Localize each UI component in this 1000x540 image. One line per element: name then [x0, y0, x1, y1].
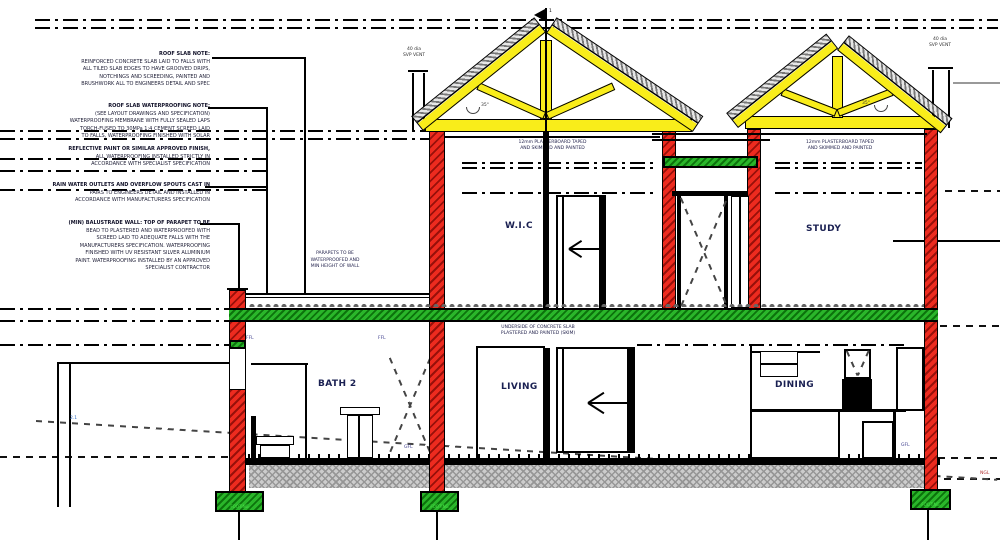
note-waterproofing: ROOF SLAB WATERPROOFING NOTE:(SEE LAYOUT…: [30, 103, 210, 141]
leader-waterproofing-h: [208, 107, 268, 109]
valley-door-jamb-left: [677, 196, 681, 309]
ceiling-datum-wic-3: [462, 192, 655, 194]
dining-upper-cabinet-shelf: [760, 363, 798, 365]
gf-door-arrow-shaft: [588, 402, 630, 404]
valley-gutter-line-2: [652, 139, 770, 141]
ffl-tag-1: FFL: [246, 336, 254, 341]
shower-screen-top: [251, 363, 308, 365]
footing-drop-line-2: [436, 512, 438, 540]
first-floor-slab: [229, 308, 938, 322]
ceiling-datum-study-1: [775, 162, 922, 164]
note-roof-slab: ROOF SLAB NOTE:REINFORCED CONCRETE SLAB …: [35, 51, 210, 89]
boundary-wall-top: [57, 362, 231, 364]
truss-left-strut-2: [545, 83, 615, 120]
truss-left-bottom-chord: [425, 119, 692, 132]
truss-left-rafter-right: [546, 17, 703, 132]
wic-door-frame-2: [562, 195, 564, 309]
leader-line-study-right: [893, 240, 1000, 242]
ngl-tag: NGL: [980, 471, 989, 476]
footing-1-label: FOOTING: [230, 504, 248, 509]
ceiling-datum-wic-1: [462, 162, 655, 164]
footing-1: FOOTING: [215, 491, 264, 512]
living-wall-right: [543, 348, 550, 458]
living-door-leaf: [627, 347, 635, 453]
leader-outlets-h: [205, 186, 267, 188]
footing-drop-line-3: [927, 510, 929, 540]
pitch-arc-left: [466, 100, 480, 114]
vent-pipe-left-cap: [408, 70, 428, 72]
dash-line-floor-left: [0, 456, 230, 458]
screed-scallops: [248, 300, 924, 308]
wic-ceiling-line: [445, 136, 660, 138]
dining-base-cabinet-1: [750, 410, 840, 459]
pitch-label-left: 35°: [481, 103, 489, 108]
ceiling-datum-ground: [637, 344, 905, 346]
dining-base-divider: [893, 410, 896, 459]
living-wall-left: [476, 346, 478, 458]
section-line: [545, 8, 547, 132]
ground-floor-slab: [229, 458, 940, 465]
section-flag-number: 1: [549, 9, 552, 14]
dash-line-right-3: [938, 457, 1000, 459]
living-bulkhead: [476, 346, 545, 348]
footing-drop-line-1: [238, 512, 240, 540]
living-door-frame: [562, 347, 564, 453]
dining-black-unit: [842, 379, 872, 410]
vent-label-left: 40 diaSVP VENT: [392, 47, 436, 59]
truss-right-strut-1: [781, 88, 838, 116]
note-parapet-mid: PARAPETS TO BEWATERPROOFED ANDMIN HEIGHT…: [295, 251, 375, 271]
wic-arrow-shaft: [569, 248, 599, 250]
footing-2: FOOTING: [420, 491, 459, 512]
note-membrane: REFLECTIVE PAINT OR SIMILAR APPROVED FIN…: [55, 146, 210, 169]
dining-tall-unit: [896, 347, 924, 411]
ceiling-datum-study-3: [775, 192, 922, 194]
room-label-study: STUDY: [806, 224, 841, 234]
wic-door-frame-1: [556, 195, 558, 309]
valley-slab: [663, 156, 758, 168]
dash-line-right-2: [940, 325, 1000, 327]
footing-3-label: FOOTING: [921, 502, 939, 507]
study-ceiling-line: [767, 133, 927, 135]
truss-left-rafter-left: [411, 17, 546, 131]
basin-top: [340, 407, 380, 415]
datum-line-top-2: [35, 27, 998, 29]
section-drawing-canvas: ROOF SLAB NOTE:REINFORCED CONCRETE SLAB …: [0, 0, 1000, 540]
toilet-seat: [256, 436, 294, 445]
footing-3: FOOTING: [910, 489, 951, 510]
datum-line-slab-bottom: [0, 320, 231, 322]
truss-left-strut-1: [476, 82, 546, 119]
valley-gutter-line-1: [652, 133, 770, 135]
valley-side-panel-line: [739, 196, 741, 308]
dash-line-right-1: [945, 190, 1000, 192]
room-label-bath: BATH 2: [318, 379, 357, 389]
room-label-dining: DINING: [775, 380, 814, 390]
parapet-top-line-2: [246, 297, 430, 298]
valley-door-jamb-right: [724, 196, 728, 309]
boundary-wall-inner: [69, 362, 71, 507]
gfl-tag-2: GFL: [901, 443, 910, 448]
footing-2-label: FOOTING: [430, 504, 448, 509]
leader-parapet-v: [238, 223, 240, 290]
note-plasterboard-right: 12mm PLASTERBOARD TAPEDAND SKIMMED AND P…: [790, 140, 890, 152]
vent-pipe-left-1: [412, 73, 414, 131]
basin-pedestal-line: [358, 415, 360, 458]
note-slab-underside: UNDERSIDE OF CONCRETE SLABPLASTERED AND …: [478, 325, 598, 337]
boundary-wall-outer: [57, 362, 59, 507]
ground-hatch: [249, 465, 925, 488]
gray-line-vent-right: [953, 82, 1000, 84]
truss-right-rafter-left: [726, 33, 838, 128]
wic-door-leaf: [599, 195, 606, 309]
level-marker-text: 2.1: [70, 416, 77, 421]
room-label-living: LIVING: [501, 382, 538, 392]
leader-roof-slab-h: [212, 57, 306, 59]
note-parapet-wall: (MIN) BALUSTRADE WALL: TOP OF PARAPET TO…: [38, 220, 210, 273]
living-door-panel: [556, 347, 635, 453]
note-outlets: RAIN WATER OUTLETS AND OVERFLOW SPOUTS C…: [35, 182, 210, 205]
vent-label-right: 40 diaSVP VENT: [918, 37, 962, 49]
vent-pipe-right-cap: [928, 67, 953, 69]
shower-screen-wall: [305, 363, 307, 458]
pitch-label-right: 35°: [862, 101, 870, 106]
ceiling-datum-wic-2: [462, 167, 655, 169]
wic-center-wall: [543, 131, 549, 309]
parapet-top-line-1: [246, 293, 430, 295]
datum-line-slab-top: [0, 308, 231, 310]
dining-base-cabinet-2: [862, 421, 894, 459]
gfl-tag-1: GFL: [404, 445, 413, 450]
datum-line-ceiling-left: [0, 344, 231, 346]
toilet-base: [260, 445, 290, 458]
datum-line-left-4: [0, 170, 268, 172]
basin-pedestal: [347, 415, 373, 458]
left-wall-window: [229, 348, 246, 390]
leader-waterproofing-v: [266, 107, 268, 295]
ceiling-datum-study-2: [775, 167, 922, 169]
note-plasterboard-left: 12mm PLASTERBOARD TAPEDAND SKIMMED AND P…: [495, 140, 610, 152]
section-flag-icon: [534, 9, 545, 21]
datum-line-top-1: [35, 19, 998, 21]
ffl-tag-2: FFL: [378, 336, 386, 341]
room-label-wic: W.I.C: [505, 221, 533, 231]
